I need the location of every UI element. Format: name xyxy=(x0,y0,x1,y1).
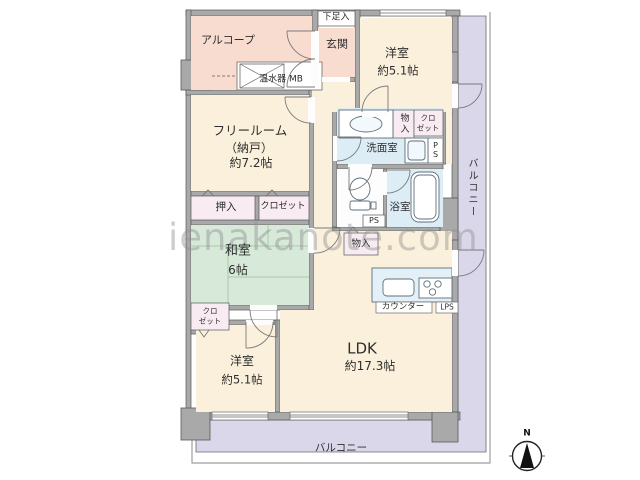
compass-icon xyxy=(509,442,545,471)
closet-center-label: クロゼット xyxy=(260,203,305,212)
western-room-bottom-size: 約5.1帖 xyxy=(221,374,262,386)
pipe-space-kitchen-label: LPS xyxy=(440,303,453,311)
balcony-right-label: バルコニー xyxy=(466,158,476,218)
closet-left-label2: ゼット xyxy=(199,317,222,325)
watermark: ienakanote.com xyxy=(168,216,479,259)
free-room-label2: （納戸） xyxy=(225,142,273,154)
alcove-label: アルコープ xyxy=(201,35,255,46)
bathtub-icon xyxy=(411,172,439,222)
ldk-size: 約17.3帖 xyxy=(345,360,396,372)
oshiire-label: 押入 xyxy=(216,202,237,213)
pipe-space-upper-label: PS xyxy=(431,141,439,159)
japanese-room-size: 6帖 xyxy=(228,264,248,276)
ldk-label: LDK xyxy=(347,342,377,357)
balcony-bottom-label: バルコニー xyxy=(315,443,367,454)
closet-left-label: クロ xyxy=(203,307,218,315)
shoe-cupboard-label: 下足入 xyxy=(322,14,349,23)
free-room-label: フリールーム xyxy=(213,125,288,138)
closet-upper-label: クロ xyxy=(421,114,436,122)
free-room-size: 約7.2帖 xyxy=(229,157,272,169)
western-room-top-size: 約5.1帖 xyxy=(377,65,418,77)
kitchen-counter-label: カウンター xyxy=(382,303,425,312)
japanese-room-label: 和室 xyxy=(225,245,251,258)
floor-plan: ienakanote.com アルコープ 下足入 玄関 温水器 MB 洋室 約5… xyxy=(0,0,640,480)
pipe-space-toilet-label: PS xyxy=(369,217,379,225)
compass-north-label: N xyxy=(523,430,531,439)
storage-upper-label: 物入 xyxy=(399,113,408,135)
closet-upper-label2: ゼット xyxy=(417,124,440,132)
storage-kitchen-label: 物入 xyxy=(351,239,370,249)
western-room-bottom-label: 洋室 xyxy=(230,355,254,367)
entrance-label: 玄関 xyxy=(326,39,348,50)
washing-machine-pan-icon xyxy=(405,138,428,163)
washroom-label: 洗面室 xyxy=(366,143,398,154)
western-room-top-label: 洋室 xyxy=(385,47,409,59)
water-heater-label: 温水器 MB xyxy=(259,76,303,85)
bathroom-label: 浴室 xyxy=(390,202,411,213)
